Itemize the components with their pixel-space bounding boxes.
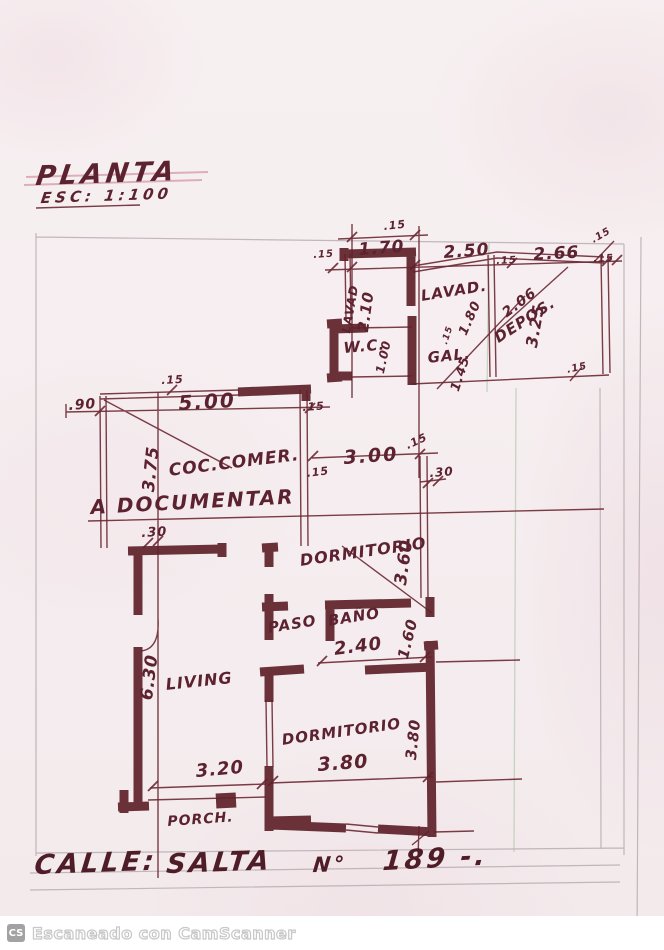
dim-coc-top-15: .15: [161, 374, 184, 386]
dim-coc-width: 5.00: [178, 390, 236, 413]
dim-coc-15: .15: [306, 465, 330, 479]
dim-coc-height: 3.75: [141, 445, 163, 492]
address-number: 189 -.: [382, 842, 489, 875]
camscanner-footer: CS Escaneado con CamScanner: [0, 916, 664, 950]
dim-porch-width: 3.20: [195, 759, 245, 781]
dim-dorm1-width: 3.00: [343, 445, 399, 468]
address-label: CALLE:: [33, 848, 158, 879]
dim-depos-right-15: .15: [593, 254, 614, 265]
dim-gal-width: 2.50: [443, 242, 490, 262]
scanned-floorplan-page: PLANTA ESC: 1:100 .15 .15 1.70 2.50 2.66…: [0, 0, 664, 950]
dim-dorm2-width: 3.80: [317, 752, 369, 775]
dim-door-30: .30: [141, 526, 168, 540]
dim-coc-90: .90: [68, 397, 97, 413]
dim-depos-width: 2.66: [533, 245, 580, 264]
camscanner-watermark-text: Escaneado con CamScanner: [32, 924, 296, 943]
dim-lavad-width: 1.70: [358, 239, 405, 259]
address-street: SALTA: [165, 847, 273, 878]
dim-lavad-left-15: .15: [313, 250, 334, 261]
dim-annex-top-15: .15: [383, 219, 407, 232]
dim-coc-right-15: .15: [302, 400, 325, 413]
dim-dorm1-30: .30: [429, 465, 454, 479]
porch-column: [216, 800, 236, 801]
dim-gal-15: .15: [496, 256, 517, 267]
camscanner-icon: CS: [7, 924, 25, 942]
dim-dorm2-height: 3.80: [404, 718, 423, 760]
floorplan-drawing: [0, 0, 664, 950]
plan-scale: ESC: 1:100: [40, 186, 173, 206]
address-number-sign: N°: [312, 854, 348, 876]
